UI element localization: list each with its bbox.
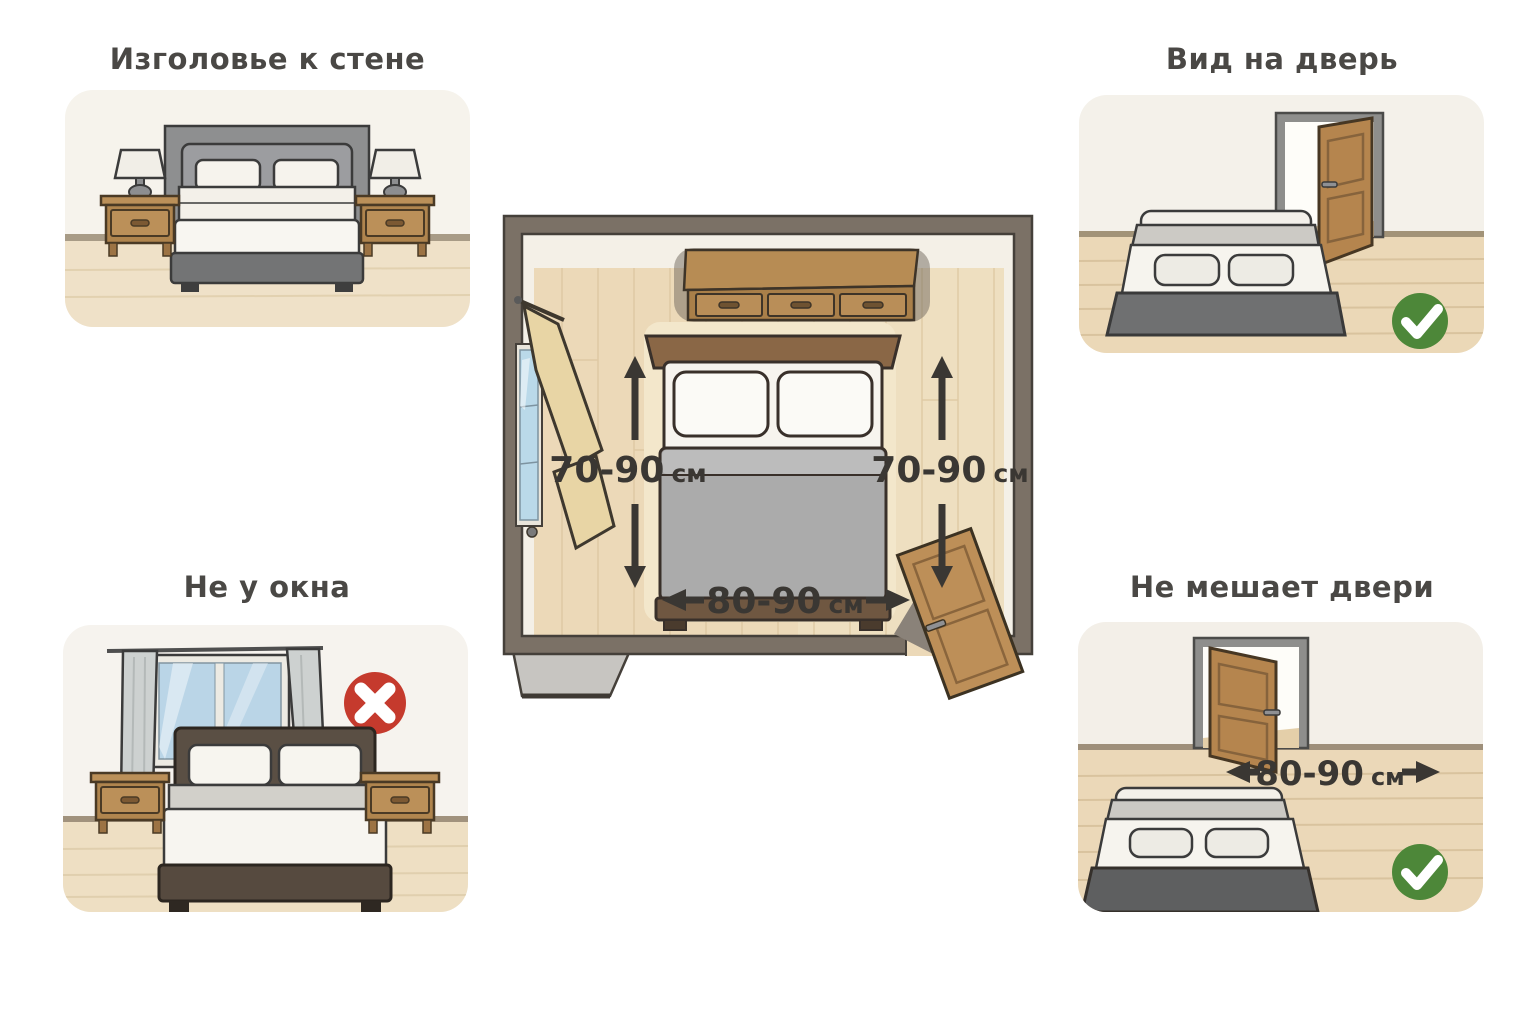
title-headboard-to-wall: Изголовье к стене <box>65 42 470 76</box>
folded-blanket <box>169 785 381 811</box>
bed-base <box>1107 293 1345 335</box>
bed-base <box>171 253 363 283</box>
check-icon <box>1392 293 1448 349</box>
pillow <box>1206 829 1268 857</box>
window-illustration <box>63 625 468 912</box>
pillow <box>279 745 361 785</box>
door-view-illustration <box>1079 95 1484 353</box>
pillow <box>1130 829 1192 857</box>
drawer-handle <box>121 797 139 803</box>
panel-not-blocking-door: 80-90см <box>1078 622 1483 916</box>
pillow <box>1155 255 1219 285</box>
bed <box>165 126 369 292</box>
door-clearance-illustration: 80-90см <box>1078 622 1483 912</box>
bed-foot <box>664 620 686 630</box>
check-icon <box>1392 844 1448 900</box>
title-view-of-door: Вид на дверь <box>1078 42 1486 76</box>
title-not-blocking-door: Не мешает двери <box>1078 570 1486 604</box>
drawer-handle <box>719 302 739 308</box>
bed-foot <box>860 620 882 630</box>
dresser <box>674 248 930 322</box>
drawer-handle <box>863 302 883 308</box>
panel-view-of-door <box>1079 95 1484 357</box>
bed-foot <box>361 901 381 912</box>
duvet <box>164 809 386 869</box>
bed-base <box>159 865 391 901</box>
door-handle <box>1264 710 1280 715</box>
duvet <box>1122 245 1331 293</box>
drawer-handle <box>791 302 811 308</box>
folded-blanket <box>1132 225 1319 247</box>
lamp-shade <box>370 150 420 178</box>
drawer-handle <box>391 797 409 803</box>
panel-headboard-to-wall <box>65 90 470 331</box>
lamp-shade <box>115 150 165 178</box>
bed <box>1107 211 1345 335</box>
floorplan: 70-90см 70-90см 80-90см <box>498 210 1038 706</box>
bed-foot <box>169 901 189 912</box>
pillow <box>196 160 260 190</box>
pillow <box>1229 255 1293 285</box>
bed-foot <box>181 282 199 292</box>
title-not-by-window: Не у окна <box>63 570 471 604</box>
bed-base <box>1082 868 1318 912</box>
drawer-handle <box>386 220 404 226</box>
bed-placement-infographic: { "infographic": { "panels": { "headboar… <box>0 0 1536 1024</box>
bed <box>159 728 391 912</box>
dresser-top <box>684 250 918 290</box>
floorplan-illustration: 70-90см 70-90см 80-90см <box>498 210 1038 702</box>
duvet <box>1096 819 1304 868</box>
pillow <box>778 372 872 436</box>
pillow <box>674 372 768 436</box>
headboard-illustration <box>65 90 470 327</box>
pillow <box>274 160 338 190</box>
panel-not-by-window <box>63 625 468 916</box>
cross-icon <box>344 672 406 734</box>
pillow <box>189 745 271 785</box>
door-handle <box>1322 182 1337 187</box>
bed <box>1082 788 1318 912</box>
drawer-handle <box>131 220 149 226</box>
bed-foot <box>335 282 353 292</box>
